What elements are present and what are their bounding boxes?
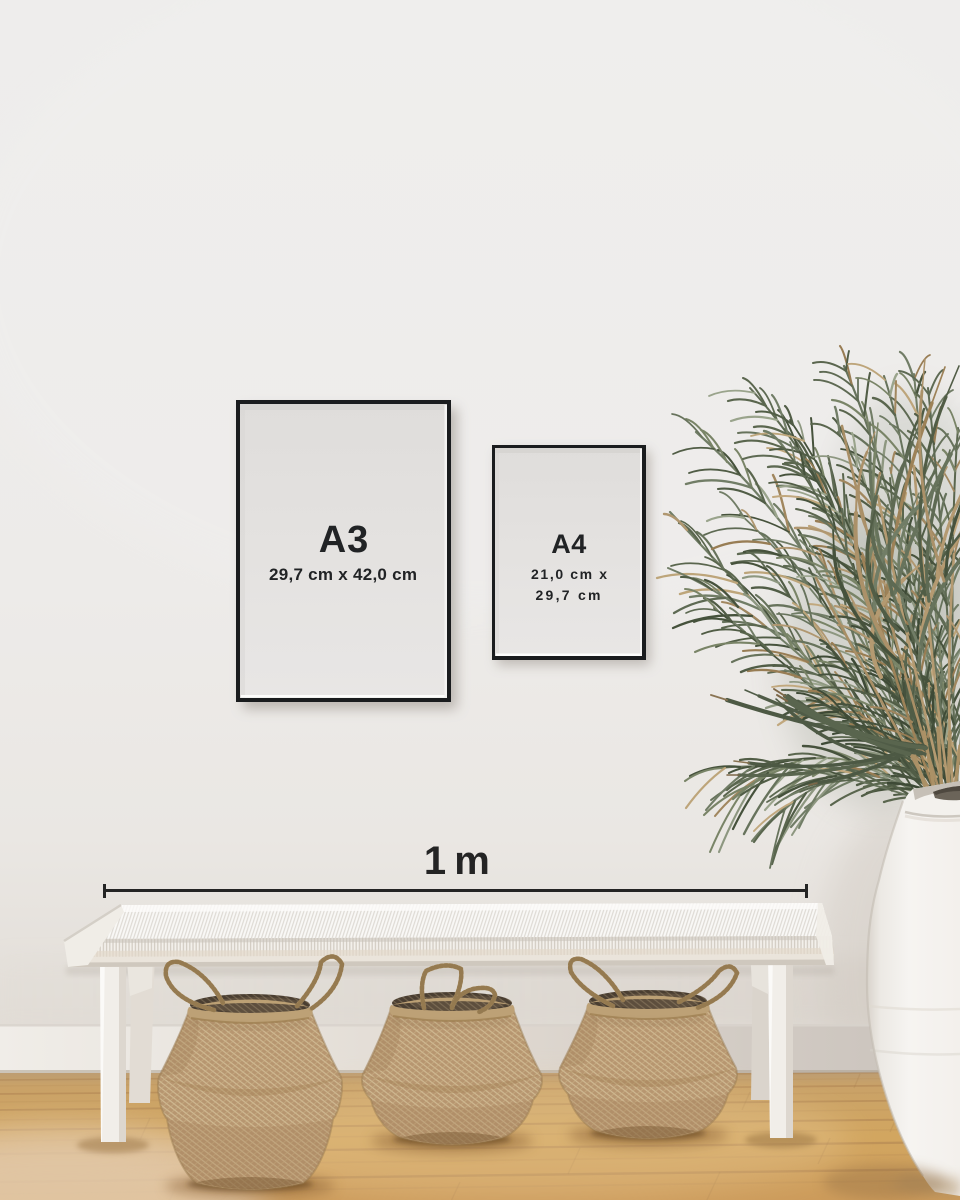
svg-text:m: m bbox=[454, 839, 490, 883]
svg-text:1: 1 bbox=[424, 839, 446, 883]
svg-text:29,7 cm: 29,7 cm bbox=[536, 587, 601, 603]
svg-text:29,7 cm x 42,0 cm: 29,7 cm x 42,0 cm bbox=[269, 565, 417, 584]
svg-text:A4: A4 bbox=[551, 529, 587, 559]
svg-text:A3: A3 bbox=[319, 519, 370, 561]
